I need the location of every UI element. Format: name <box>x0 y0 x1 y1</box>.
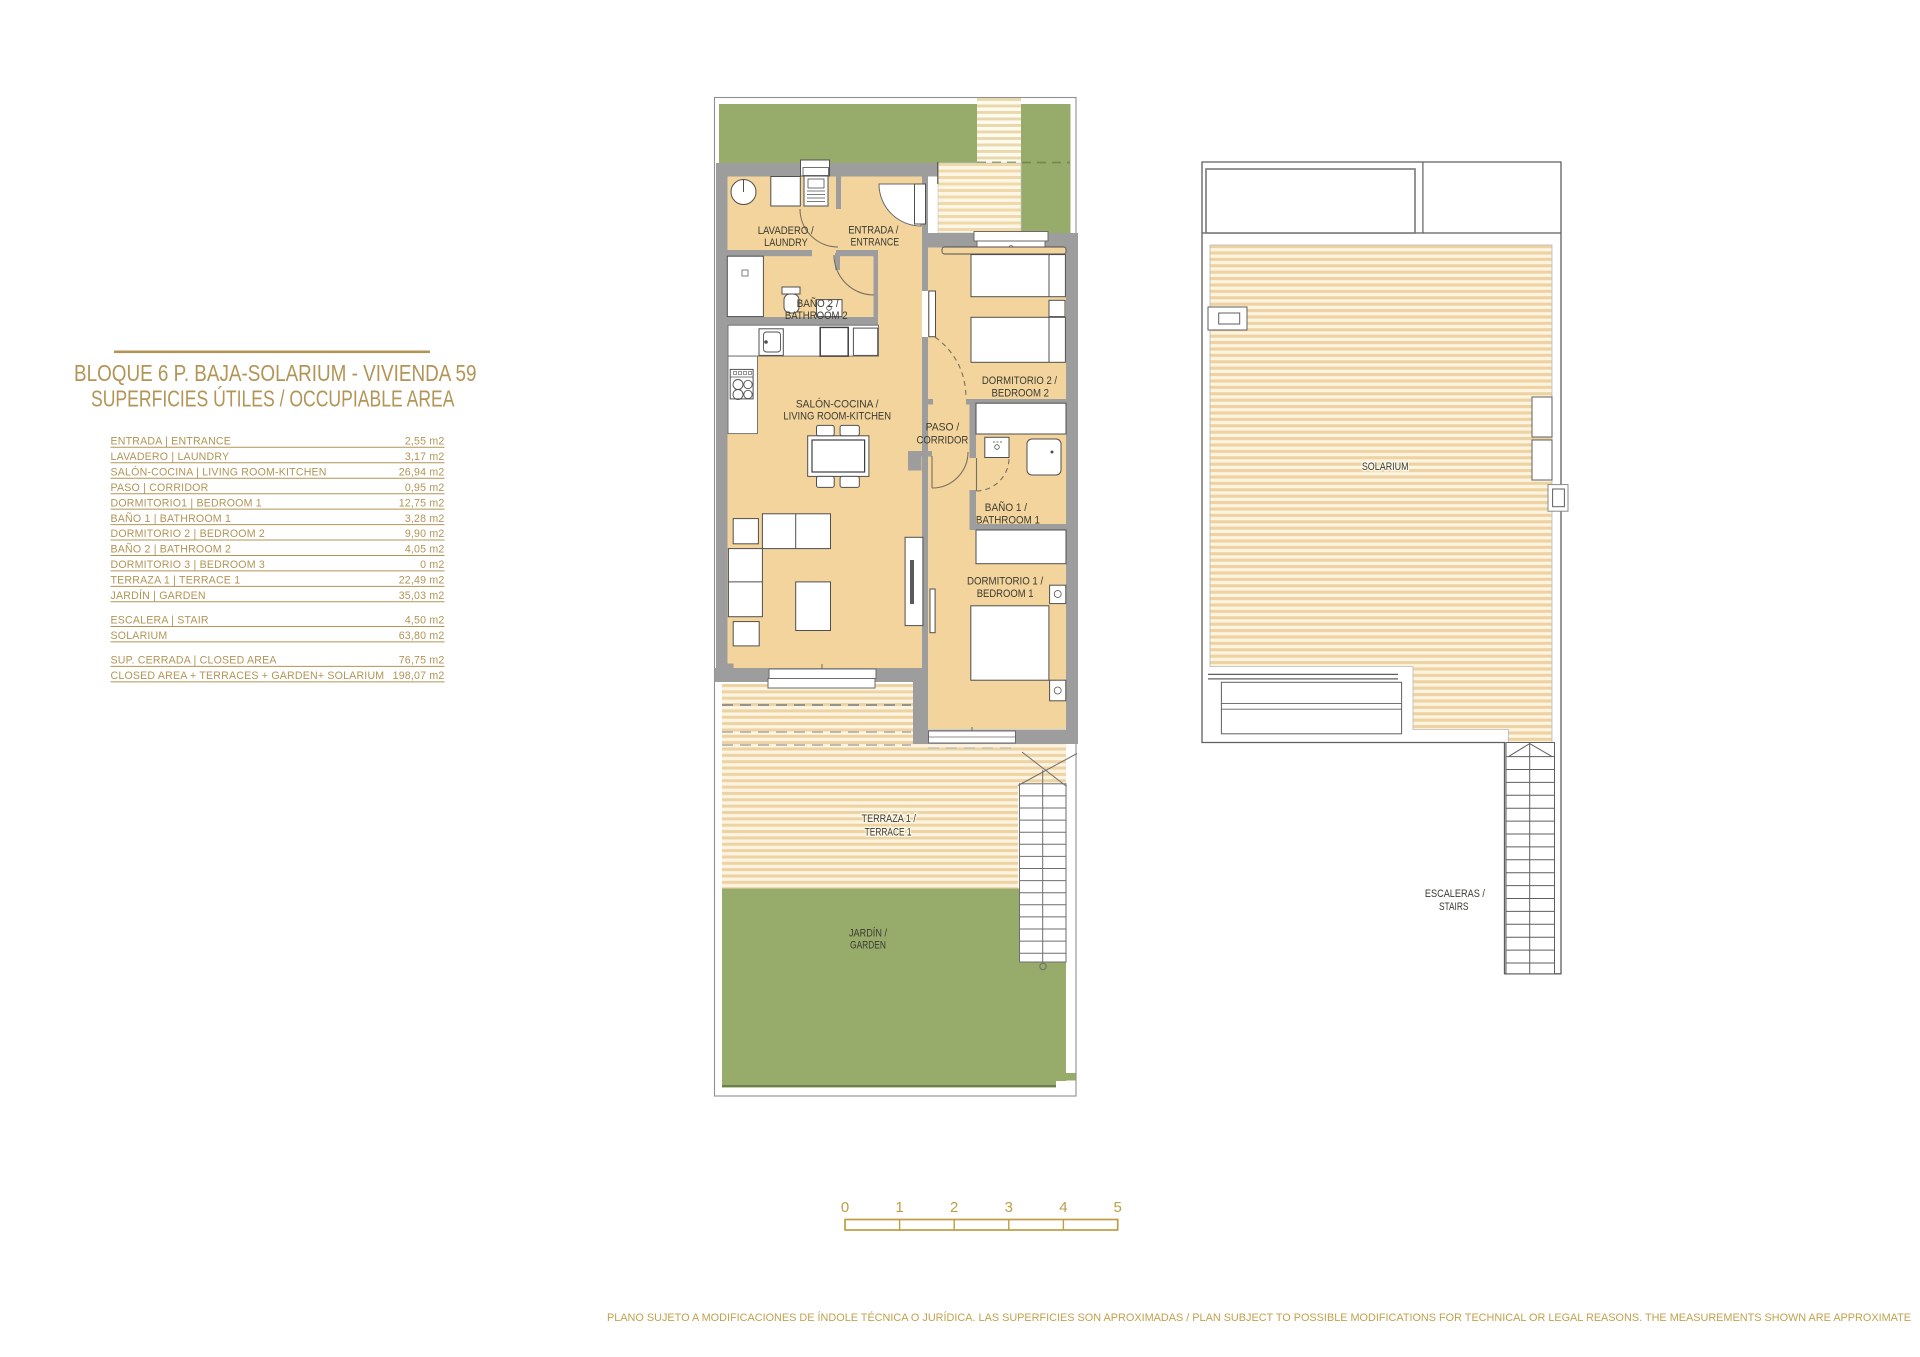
svg-text:LAUNDRY: LAUNDRY <box>764 237 808 249</box>
svg-text:4,05 m2: 4,05 m2 <box>405 544 445 556</box>
svg-text:2,55 m2: 2,55 m2 <box>405 436 445 448</box>
svg-text:BAÑO 1 /: BAÑO 1 / <box>985 501 1028 514</box>
svg-text:BEDROOM 2: BEDROOM 2 <box>991 387 1049 399</box>
svg-text:PASO /: PASO / <box>926 421 960 433</box>
svg-text:5: 5 <box>1114 1199 1122 1216</box>
svg-text:JARDÍN /: JARDÍN / <box>849 926 888 939</box>
svg-text:198,07 m2: 198,07 m2 <box>393 670 445 682</box>
svg-text:SOLARIUM: SOLARIUM <box>1362 461 1409 473</box>
svg-text:0: 0 <box>841 1199 849 1216</box>
svg-text:DORMITORIO 1 /: DORMITORIO 1 / <box>967 575 1044 587</box>
svg-text:CLOSED AREA + TERRACES + GARDE: CLOSED AREA + TERRACES + GARDEN+ SOLARIU… <box>111 670 385 682</box>
svg-text:0,95 m2: 0,95 m2 <box>405 482 445 494</box>
svg-text:SUP. CERRADA | CLOSED AREA: SUP. CERRADA | CLOSED AREA <box>111 655 278 667</box>
svg-text:LAVADERO | LAUNDRY: LAVADERO | LAUNDRY <box>111 451 230 463</box>
svg-text:22,49 m2: 22,49 m2 <box>399 575 445 587</box>
svg-text:LAVADERO /: LAVADERO / <box>758 225 815 237</box>
svg-text:63,80 m2: 63,80 m2 <box>399 630 445 642</box>
svg-text:SALÓN-COCINA /: SALÓN-COCINA / <box>796 398 879 411</box>
svg-text:35,03 m2: 35,03 m2 <box>399 590 445 602</box>
svg-text:ENTRADA /: ENTRADA / <box>848 224 899 236</box>
svg-text:BAÑO 2 | BATHROOM 2: BAÑO 2 | BATHROOM 2 <box>111 543 232 556</box>
svg-text:TERRAZA 1 | TERRACE 1: TERRAZA 1 | TERRACE 1 <box>111 575 241 587</box>
svg-text:SOLARIUM: SOLARIUM <box>111 630 168 642</box>
svg-text:76,75 m2: 76,75 m2 <box>399 655 445 667</box>
svg-text:TERRACE 1: TERRACE 1 <box>865 826 912 838</box>
svg-text:3,17 m2: 3,17 m2 <box>405 451 445 463</box>
svg-text:SALÓN-COCINA | LIVING ROOM-K: SALÓN-COCINA | LIVING ROOM-KITCHEN <box>111 465 327 478</box>
svg-text:3,28 m2: 3,28 m2 <box>405 513 445 525</box>
svg-text:4,50 m2: 4,50 m2 <box>405 615 445 627</box>
svg-text:4: 4 <box>1059 1199 1067 1216</box>
svg-text:9,90 m2: 9,90 m2 <box>405 528 445 540</box>
svg-text:ENTRADA | ENTRANCE: ENTRADA | ENTRANCE <box>111 436 232 448</box>
svg-text:DORMITORIO 3 | BEDROOM 3: DORMITORIO 3 | BEDROOM 3 <box>111 559 266 571</box>
svg-text:BLOQUE 6 P. BAJA-SOLARIUM - VI: BLOQUE 6 P. BAJA-SOLARIUM - VIVIENDA 59 <box>74 360 477 386</box>
svg-text:BATHROOM 1: BATHROOM 1 <box>976 515 1040 527</box>
svg-text:LIVING ROOM-KITCHEN: LIVING ROOM-KITCHEN <box>783 411 891 423</box>
svg-text:0 m2: 0 m2 <box>420 559 444 571</box>
svg-text:ESCALERAS /: ESCALERAS / <box>1425 888 1486 900</box>
svg-text:BAÑO 1 | BATHROOM 1: BAÑO 1 | BATHROOM 1 <box>111 512 232 525</box>
svg-text:BAÑO 2 /: BAÑO 2 / <box>797 297 840 310</box>
svg-text:JARDÍN | GARDEN: JARDÍN | GARDEN <box>111 589 206 602</box>
svg-text:TERRAZA 1 /: TERRAZA 1 / <box>862 813 917 825</box>
svg-text:26,94 m2: 26,94 m2 <box>399 466 445 478</box>
svg-text:12,75 m2: 12,75 m2 <box>399 497 445 509</box>
svg-text:CORRIDOR: CORRIDOR <box>917 435 969 447</box>
svg-text:DORMITORIO 2 | BEDROOM 2: DORMITORIO 2 | BEDROOM 2 <box>111 528 266 540</box>
svg-text:DORMITORIO1 | BEDROOM 1: DORMITORIO1 | BEDROOM 1 <box>111 497 262 509</box>
svg-text:ENTRANCE: ENTRANCE <box>850 236 899 248</box>
svg-text:BATHROOM 2: BATHROOM 2 <box>785 310 848 322</box>
svg-text:2: 2 <box>950 1199 958 1216</box>
svg-text:SUPERFICIES ÚTILES / OCCUPIABL: SUPERFICIES ÚTILES / OCCUPIABLE AREA <box>91 386 455 412</box>
svg-text:1: 1 <box>895 1199 903 1216</box>
svg-text:PASO | CORRIDOR: PASO | CORRIDOR <box>111 482 209 494</box>
svg-text:DORMITORIO 2 /: DORMITORIO 2 / <box>982 375 1058 387</box>
svg-text:BEDROOM 1: BEDROOM 1 <box>977 588 1034 600</box>
svg-text:GARDEN: GARDEN <box>850 940 886 952</box>
svg-text:3: 3 <box>1005 1199 1013 1216</box>
svg-text:STAIRS: STAIRS <box>1439 901 1469 913</box>
svg-text:PLANO SUJETO A MODIFICACIONES: PLANO SUJETO A MODIFICACIONES DE ÍNDOLE … <box>607 1311 1911 1324</box>
svg-text:ESCALERA | STAIR: ESCALERA | STAIR <box>111 615 209 627</box>
